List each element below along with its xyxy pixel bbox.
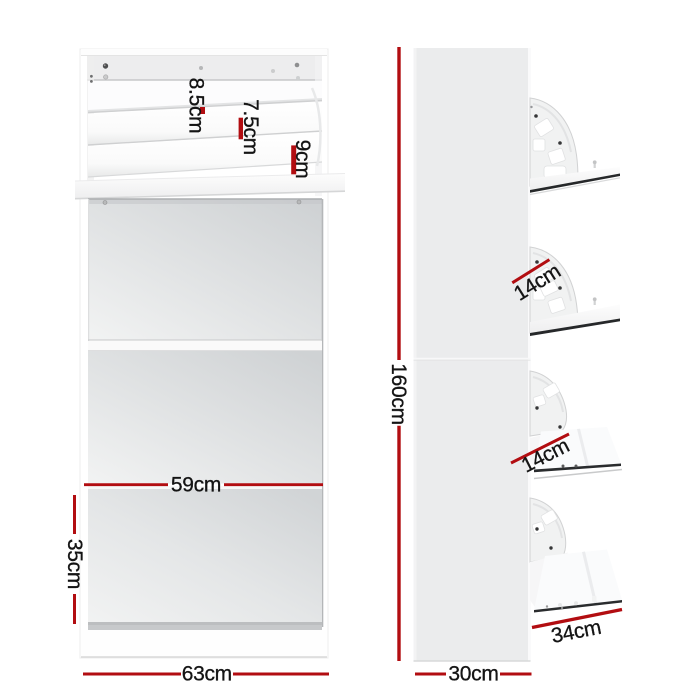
svg-text:160cm: 160cm [387, 363, 410, 425]
svg-text:8.5cm: 8.5cm [184, 78, 207, 134]
svg-text:9cm: 9cm [291, 140, 314, 179]
svg-text:30cm: 30cm [448, 663, 498, 686]
svg-text:35cm: 35cm [63, 539, 86, 589]
svg-text:59cm: 59cm [171, 474, 221, 497]
svg-text:63cm: 63cm [182, 663, 232, 686]
svg-text:7.5cm: 7.5cm [239, 99, 262, 155]
